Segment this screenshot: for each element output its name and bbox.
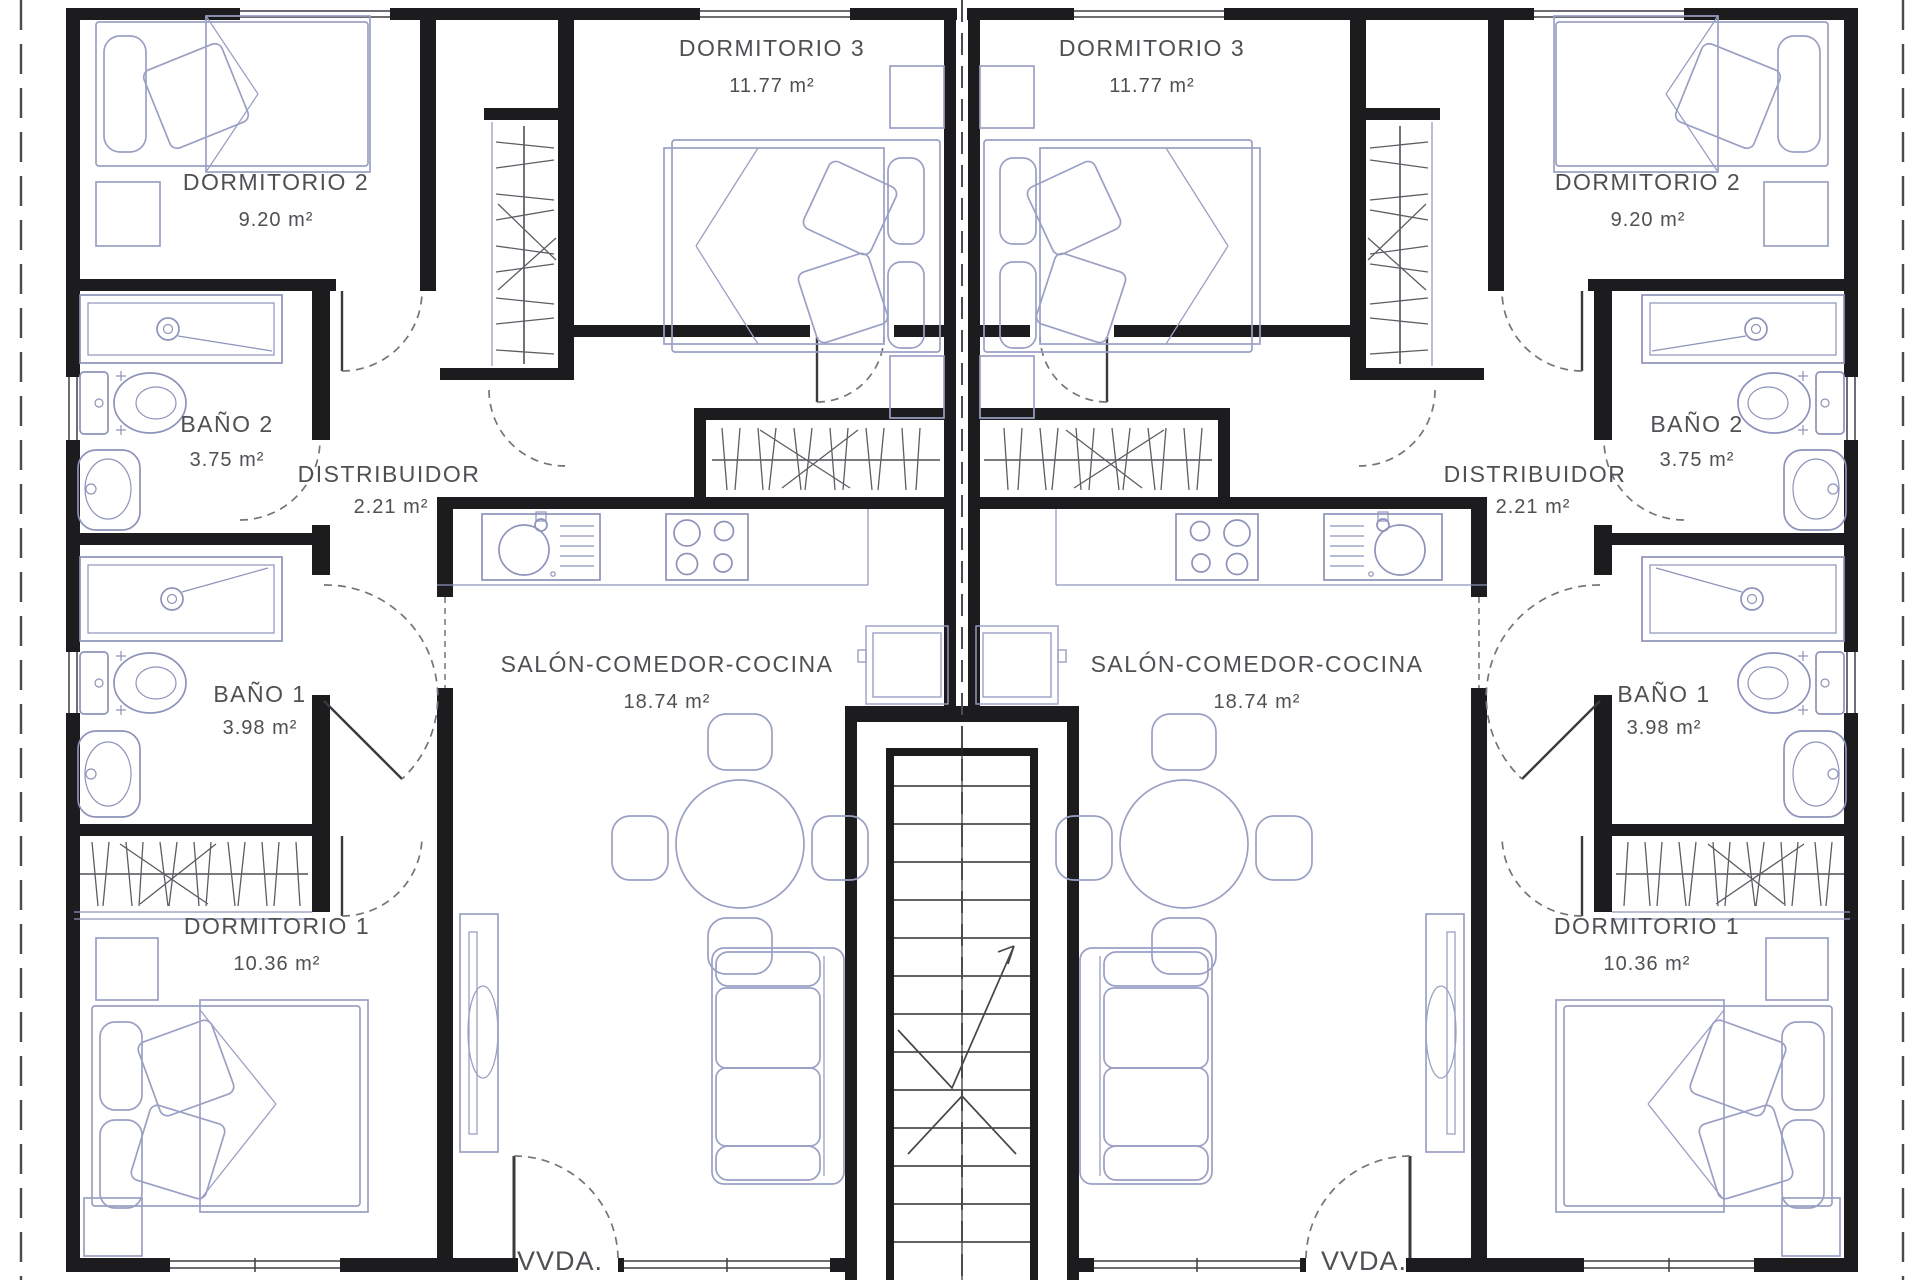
room-label: BAÑO 2 — [180, 411, 273, 437]
room-label: SALÓN-COMEDOR-COCINA — [1091, 651, 1424, 677]
stair-inner-wall — [1030, 748, 1038, 1280]
room-label: DISTRIBUIDOR — [298, 461, 481, 487]
room-label: BAÑO 1 — [213, 681, 306, 707]
floor-plan-drawing: DORMITORIO 2 9.20 m² DORMITORIO 3 11.77 … — [0, 0, 1920, 1280]
room-label: BAÑO 2 — [1650, 411, 1743, 437]
dwelling-label: VVDA. — [517, 1246, 603, 1276]
labels-right-unit: DORMITORIO 2 9.20 m² DORMITORIO 3 11.77 … — [1059, 35, 1744, 1280]
room-area: 10.36 m² — [234, 953, 321, 975]
dwelling-number: 2 — [1356, 1276, 1372, 1280]
dwelling-number: 1 — [552, 1276, 568, 1280]
room-area: 11.77 m² — [1109, 75, 1194, 97]
room-area: 10.36 m² — [1604, 953, 1691, 975]
room-label: SALÓN-COMEDOR-COCINA — [501, 651, 834, 677]
room-area: 3.98 m² — [1627, 717, 1702, 739]
stair-direction-arrow — [898, 946, 1016, 1154]
room-area: 2.21 m² — [1496, 496, 1571, 518]
room-label: DORMITORIO 2 — [1555, 169, 1741, 195]
labels-left-unit: DORMITORIO 2 9.20 m² DORMITORIO 3 11.77 … — [180, 35, 865, 1280]
room-area: 18.74 m² — [624, 691, 711, 713]
apartment-unit-left — [66, 8, 957, 1280]
room-label: BAÑO 1 — [1617, 681, 1710, 707]
floor-plan-page: DORMITORIO 2 9.20 m² DORMITORIO 3 11.77 … — [0, 0, 1920, 1280]
room-label: DORMITORIO 3 — [679, 35, 865, 61]
room-area: 3.98 m² — [223, 717, 298, 739]
room-label: DISTRIBUIDOR — [1444, 461, 1627, 487]
room-label: DORMITORIO 2 — [183, 169, 369, 195]
room-area: 9.20 m² — [1611, 209, 1686, 231]
room-area: 9.20 m² — [239, 209, 314, 231]
room-area: 3.75 m² — [190, 449, 265, 471]
room-area: 2.21 m² — [354, 496, 429, 518]
room-area: 3.75 m² — [1660, 449, 1735, 471]
stair-inner-wall — [886, 748, 894, 1280]
apartment-unit-right-geom — [967, 8, 1858, 1280]
apartment-unit-right — [967, 8, 1858, 1280]
room-area: 11.77 m² — [729, 75, 814, 97]
room-area: 18.74 m² — [1214, 691, 1301, 713]
room-label: DORMITORIO 1 — [1554, 913, 1740, 939]
dwelling-label: VVDA. — [1321, 1246, 1407, 1276]
room-label: DORMITORIO 3 — [1059, 35, 1245, 61]
room-label: DORMITORIO 1 — [184, 913, 370, 939]
